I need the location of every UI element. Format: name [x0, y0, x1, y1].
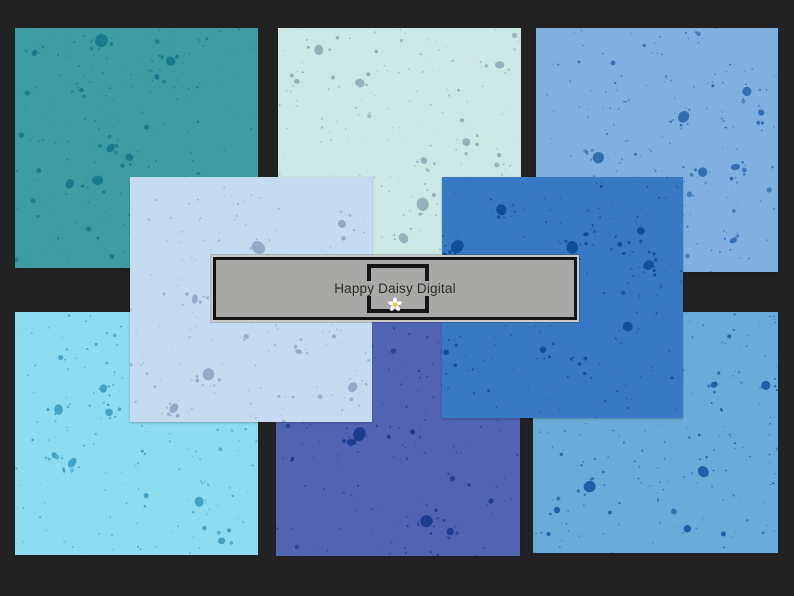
brand-name: Happy Daisy Digital [216, 281, 574, 296]
daisy-flower-icon [387, 297, 403, 312]
watermark-banner: Happy Daisy Digital [213, 257, 577, 320]
digital-paper-pack-preview: Happy Daisy Digital [0, 0, 794, 596]
